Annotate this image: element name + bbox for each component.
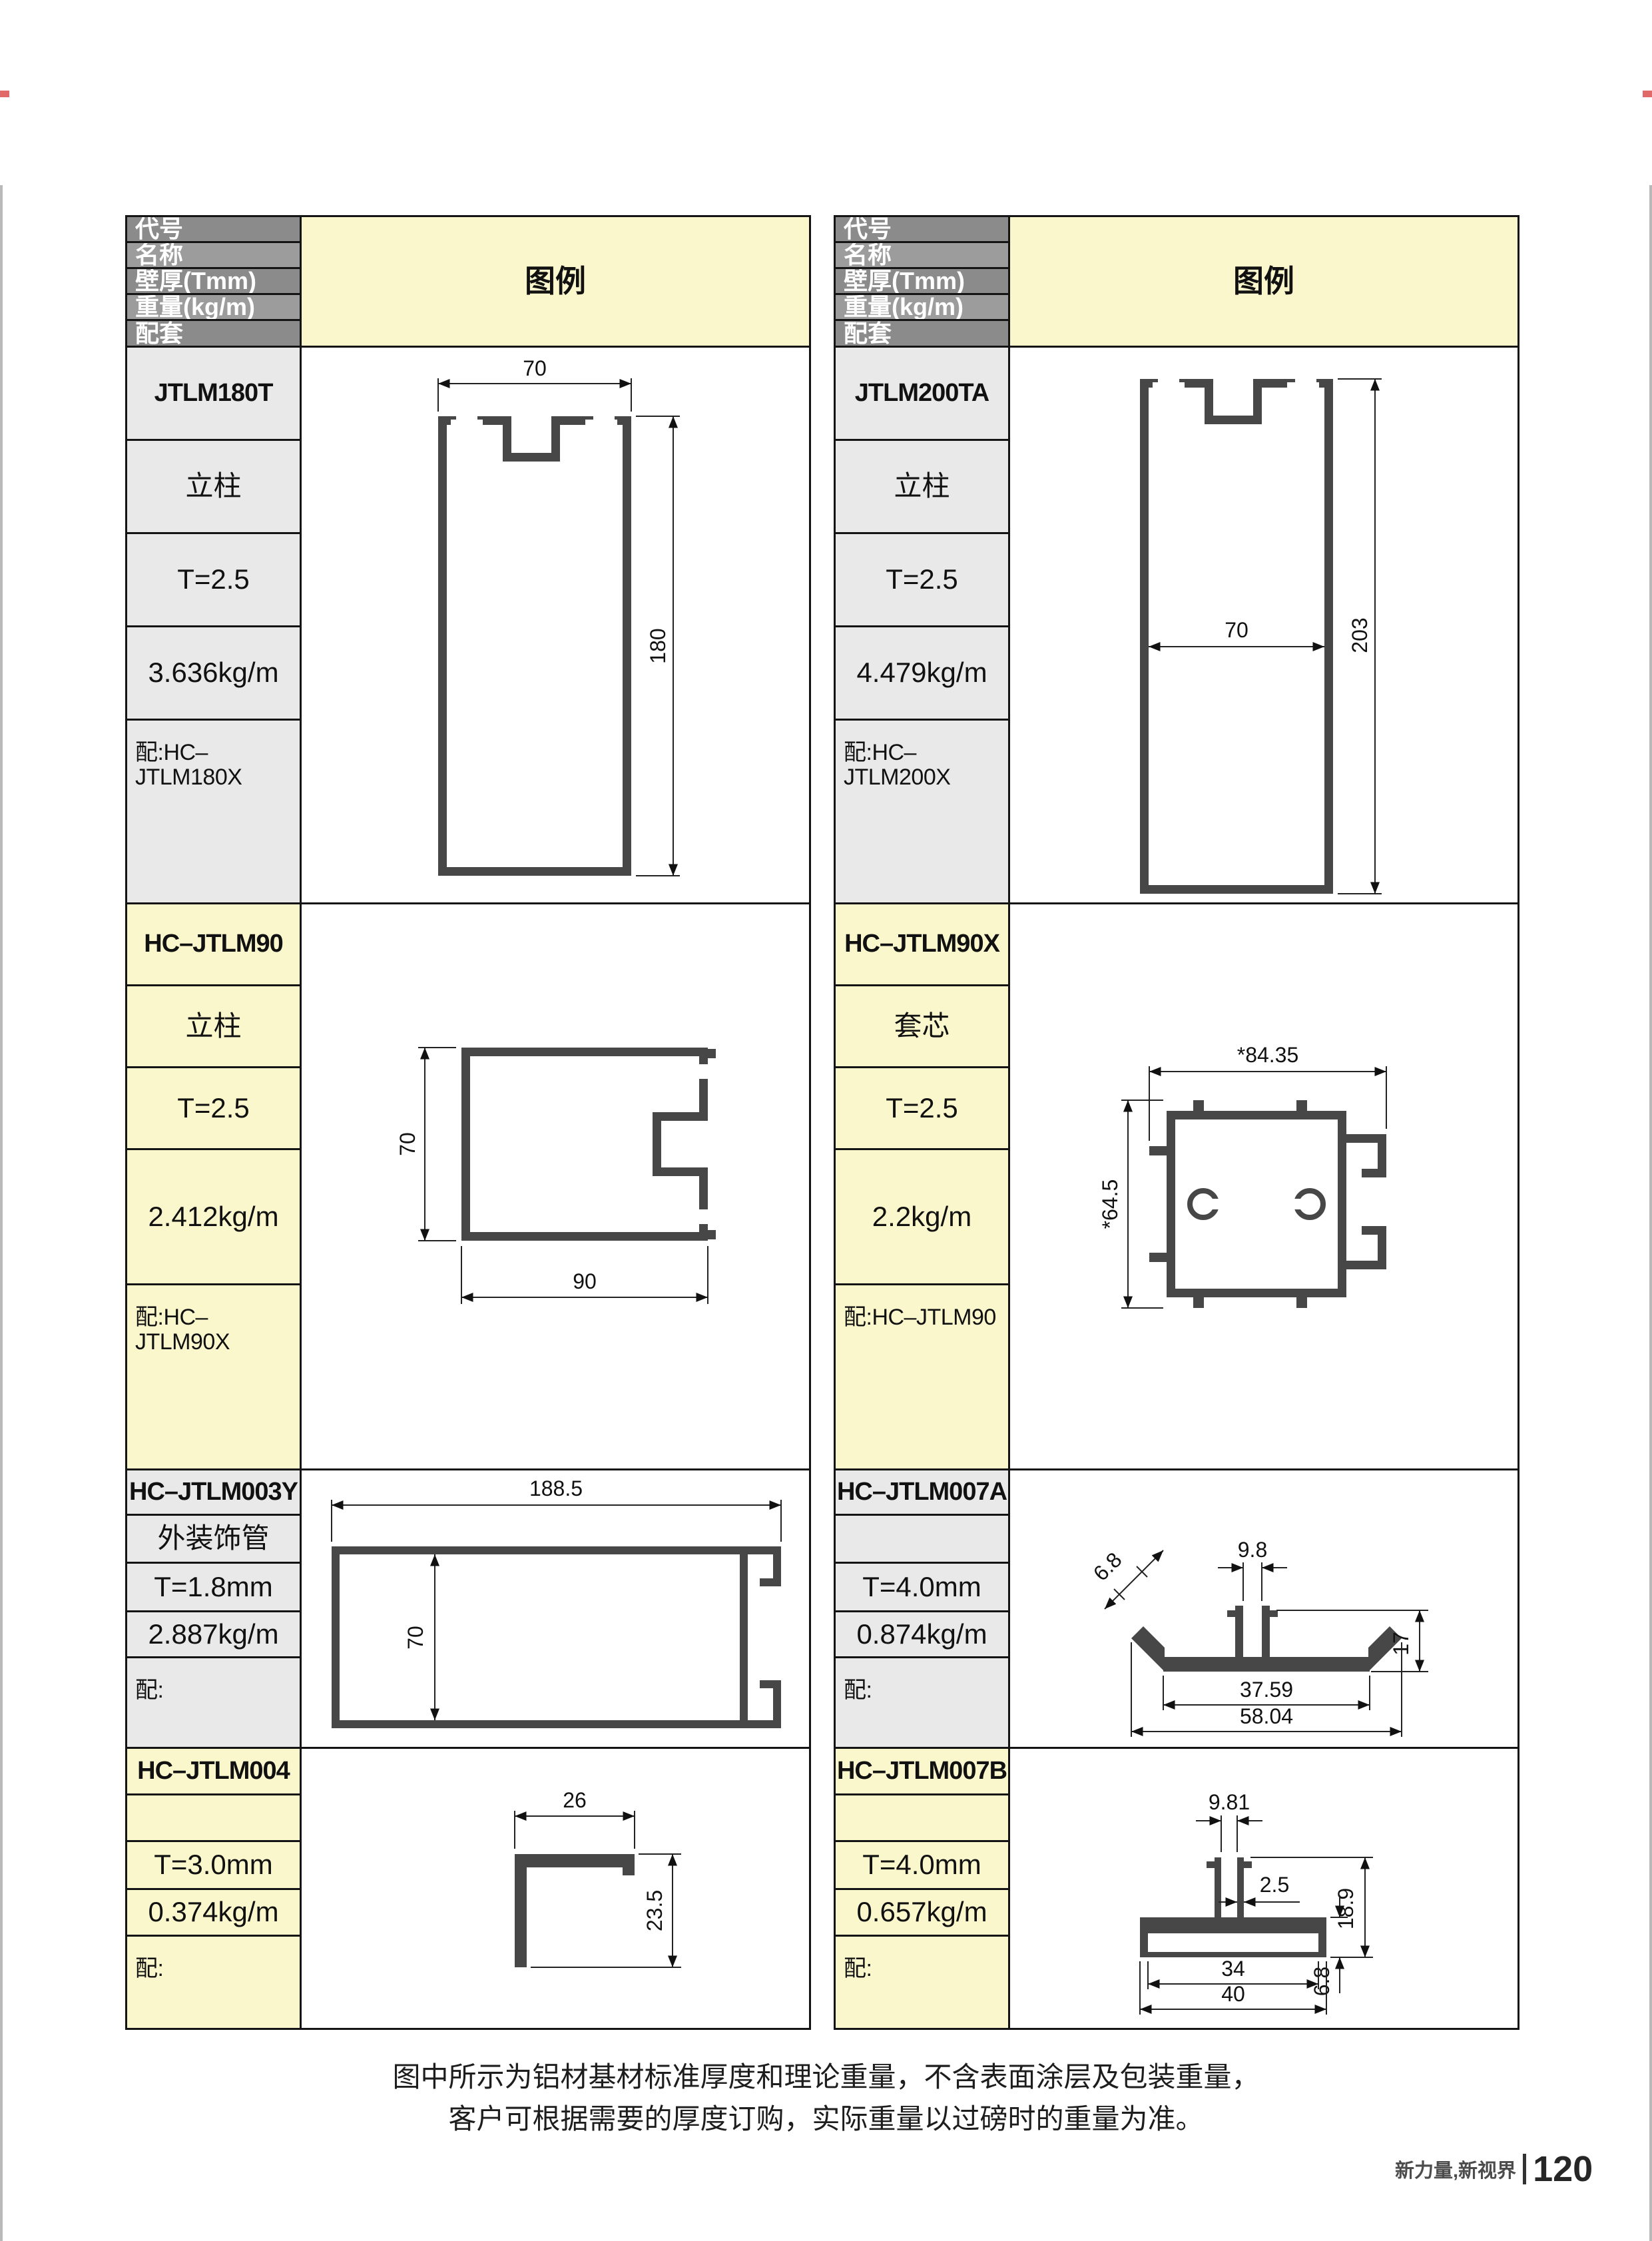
dim-outer-label: 40: [1221, 1982, 1245, 2006]
cell-thickness: T=1.8mm: [127, 1564, 300, 1610]
header-weight: 重量(kg/m): [127, 295, 300, 319]
footer-page-number: 120: [1533, 2148, 1593, 2190]
dim-web-label: 2.5: [1260, 1873, 1289, 1897]
footnote-line-1: 图中所示为铝材基材标准厚度和理论重量，不含表面涂层及包装重量，: [0, 2055, 1652, 2095]
cell-thickness: T=3.0mm: [127, 1842, 300, 1888]
crop-mark-right: [1643, 91, 1652, 97]
cell-name: [836, 1516, 1008, 1562]
dim-height-label: 23.5: [643, 1890, 667, 1931]
cell-weight: 4.479kg/m: [836, 627, 1008, 719]
cell-code: HC–JTLM007B: [836, 1749, 1008, 1793]
drawing-cell-jtlm003y: 188.5 70: [302, 1470, 809, 1747]
profile-drawing-jtlm180t: 70 180: [382, 353, 721, 879]
dim-width-label: 70: [523, 356, 547, 380]
drawing-cell-jtlm90: 70 90: [302, 904, 809, 1468]
header-thickness: 壁厚(Tmm): [836, 269, 1008, 293]
drawing-cell-jtlm180t: 70 180: [302, 348, 809, 902]
dim-height-label: 203: [1348, 617, 1372, 653]
dim-width-label: 188.5: [529, 1476, 583, 1500]
crop-mark-left: [0, 91, 9, 97]
cell-weight: 2.2kg/m: [836, 1150, 1008, 1283]
cell-weight: 0.874kg/m: [836, 1612, 1008, 1656]
page-edge-line-right: [1649, 185, 1652, 2241]
cell-name: [836, 1795, 1008, 1840]
dim-inner-label: 37.59: [1240, 1678, 1293, 1702]
cell-match: 配:HC–JTLM180X: [127, 721, 300, 902]
cell-weight: 0.374kg/m: [127, 1890, 300, 1935]
header-thickness: 壁厚(Tmm): [127, 269, 300, 293]
profile-drawing-jtlm007a: 9.8 6.8 17 37.59 58.04: [1063, 1470, 1463, 1747]
cell-thickness: T=2.5: [836, 534, 1008, 625]
header-code: 代号: [127, 217, 300, 241]
cell-match: 配:HC–JTLM200X: [836, 721, 1008, 902]
dim-height-label: 70: [396, 1132, 419, 1156]
cell-thickness: T=4.0mm: [836, 1564, 1008, 1610]
cell-weight: 2.887kg/m: [127, 1612, 300, 1656]
profile-drawing-jtlm90x: *84.35 *64.5: [1067, 1034, 1440, 1347]
dim-width-label: 26: [563, 1788, 587, 1812]
cell-code: HC–JTLM003Y: [127, 1470, 300, 1514]
cell-weight: 0.657kg/m: [836, 1890, 1008, 1935]
cell-thickness: T=2.5: [127, 534, 300, 625]
dim-width-label: *84.35: [1237, 1043, 1299, 1067]
profile-drawing-jtlm003y: 188.5 70: [308, 1472, 801, 1745]
cell-match: 配:: [127, 1937, 300, 2028]
dim-base-label: 6.8: [1310, 1967, 1334, 1996]
header-legend: 图例: [302, 217, 809, 346]
dim-width-label: 70: [1225, 618, 1248, 642]
cell-name: 外装饰管: [127, 1516, 300, 1562]
cell-name: 立柱: [127, 441, 300, 532]
cell-code: HC–JTLM90X: [836, 904, 1008, 984]
drawing-cell-jtlm007b: 9.81 2.5 18.9 6.8 34 40: [1010, 1749, 1517, 2028]
cell-code: HC–JTLM90: [127, 904, 300, 984]
drawing-cell-jtlm90x: *84.35 *64.5: [1010, 904, 1517, 1468]
profile-drawing-jtlm90: 70 90: [355, 1001, 754, 1321]
cell-match: 配:: [127, 1658, 300, 1747]
cell-name: [127, 1795, 300, 1840]
cell-thickness: T=2.5: [836, 1068, 1008, 1148]
profile-drawing-jtlm007b: 9.81 2.5 18.9 6.8 34 40: [1060, 1759, 1420, 2019]
drawing-cell-jtlm004: 26 23.5: [302, 1749, 809, 2028]
cell-name: 套芯: [836, 986, 1008, 1066]
header-match: 配套: [836, 321, 1008, 346]
cell-thickness: T=4.0mm: [836, 1842, 1008, 1888]
cell-weight: 2.412kg/m: [127, 1150, 300, 1283]
cell-match: 配:: [836, 1937, 1008, 2028]
cell-match: 配:: [836, 1658, 1008, 1747]
dim-height-label: *64.5: [1098, 1179, 1122, 1229]
spec-table-right: 代号 名称 壁厚(Tmm) 重量(kg/m) 配套 图例 JTLM200TA 立…: [834, 215, 1519, 2030]
page-footer: 新力量,新视界 120: [1395, 2148, 1593, 2190]
spec-table-left: 代号 名称 壁厚(Tmm) 重量(kg/m) 配套 图例 JTLM180T 立柱…: [125, 215, 811, 2030]
cell-match: 配:HC–JTLM90: [836, 1285, 1008, 1468]
profile-drawing-jtlm004: 26 23.5: [438, 1774, 724, 1994]
header-legend: 图例: [1010, 217, 1517, 346]
dim-slot-label: 9.81: [1209, 1790, 1250, 1814]
dim-width-label: 90: [573, 1269, 597, 1293]
header-name: 名称: [127, 243, 300, 267]
footer-divider: [1523, 2154, 1526, 2184]
dim-height-label: 180: [646, 628, 670, 663]
cell-code: JTLM180T: [127, 348, 300, 439]
dim-slot-label: 9.8: [1238, 1538, 1267, 1562]
header-code: 代号: [836, 217, 1008, 241]
cell-name: 立柱: [127, 986, 300, 1066]
page-edge-line-left: [0, 185, 3, 2241]
cell-code: JTLM200TA: [836, 348, 1008, 439]
cell-code: HC–JTLM007A: [836, 1470, 1008, 1514]
cell-weight: 3.636kg/m: [127, 627, 300, 719]
footer-brand: 新力量,新视界: [1395, 2155, 1516, 2183]
drawing-cell-jtlm200ta: 70 203: [1010, 348, 1517, 902]
dim-wing-label: 6.8: [1089, 1548, 1127, 1586]
cell-thickness: T=2.5: [127, 1068, 300, 1148]
profile-drawing-jtlm200ta: 70 203: [1083, 349, 1423, 900]
header-name: 名称: [836, 243, 1008, 267]
dim-height-label: 18.9: [1334, 1888, 1358, 1929]
cell-name: 立柱: [836, 441, 1008, 532]
cell-code: HC–JTLM004: [127, 1749, 300, 1793]
header-match: 配套: [127, 321, 300, 346]
footnote-line-2: 客户可根据需要的厚度订购，实际重量以过磅时的重量为准。: [0, 2096, 1652, 2137]
dim-outer-label: 58.04: [1240, 1704, 1293, 1728]
dim-height-label: 70: [404, 1626, 427, 1650]
drawing-cell-jtlm007a: 9.8 6.8 17 37.59 58.04: [1010, 1470, 1517, 1747]
dim-inner-label: 34: [1221, 1957, 1245, 1981]
cell-match: 配:HC–JTLM90X: [127, 1285, 300, 1468]
header-weight: 重量(kg/m): [836, 295, 1008, 319]
